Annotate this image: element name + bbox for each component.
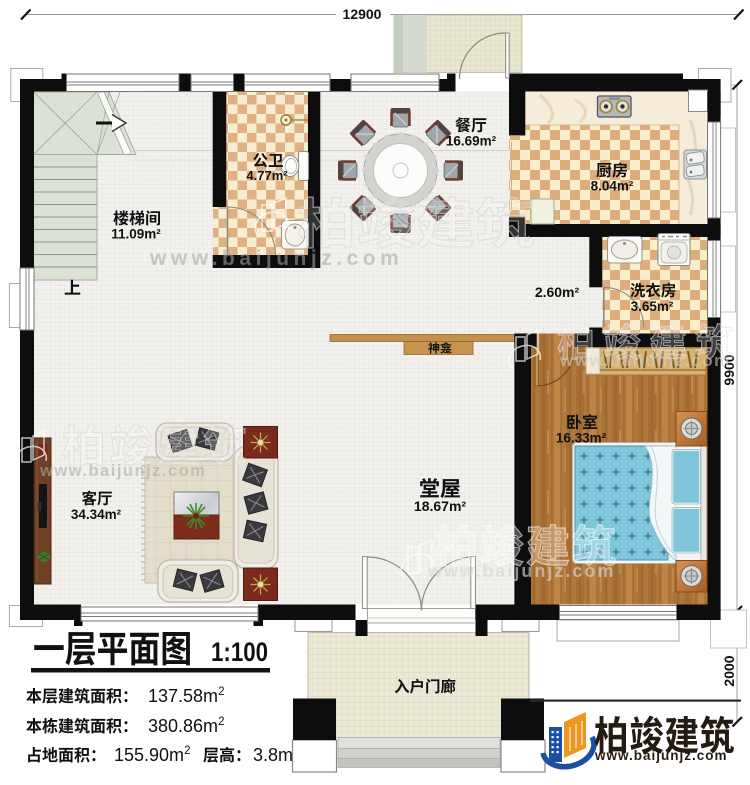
svg-text:www.baijunjz.com: www.baijunjz.com: [427, 561, 615, 581]
svg-text:1:100: 1:100: [211, 637, 268, 667]
svg-text:18.67m²: 18.67m²: [414, 498, 466, 514]
svg-text:155.90m2: 155.90m2: [114, 745, 190, 765]
svg-text:www.baijunjz.com: www.baijunjz.com: [594, 748, 728, 763]
svg-text:www.baijunjz.com: www.baijunjz.com: [39, 462, 206, 480]
svg-text:12900: 12900: [343, 6, 382, 22]
svg-text:8.04m²: 8.04m²: [591, 179, 634, 194]
svg-text:www.baijunjz.com: www.baijunjz.com: [149, 247, 403, 270]
svg-text:16.33m²: 16.33m²: [556, 431, 607, 446]
svg-text:3.8m: 3.8m: [253, 745, 293, 765]
svg-text:16.69m²: 16.69m²: [446, 134, 497, 149]
svg-text:2.60m²: 2.60m²: [535, 284, 580, 300]
svg-text:11.09m²: 11.09m²: [111, 227, 161, 242]
svg-text:2000: 2000: [721, 655, 737, 686]
svg-text:34.34m²: 34.34m²: [71, 507, 122, 522]
svg-text:www.baijunjz.com: www.baijunjz.com: [559, 351, 731, 370]
svg-text:3.65m²: 3.65m²: [631, 299, 674, 314]
svg-text:380.86m2: 380.86m2: [148, 716, 224, 736]
svg-text:137.58m2: 137.58m2: [148, 686, 224, 706]
svg-text:4.77m²: 4.77m²: [246, 168, 288, 183]
